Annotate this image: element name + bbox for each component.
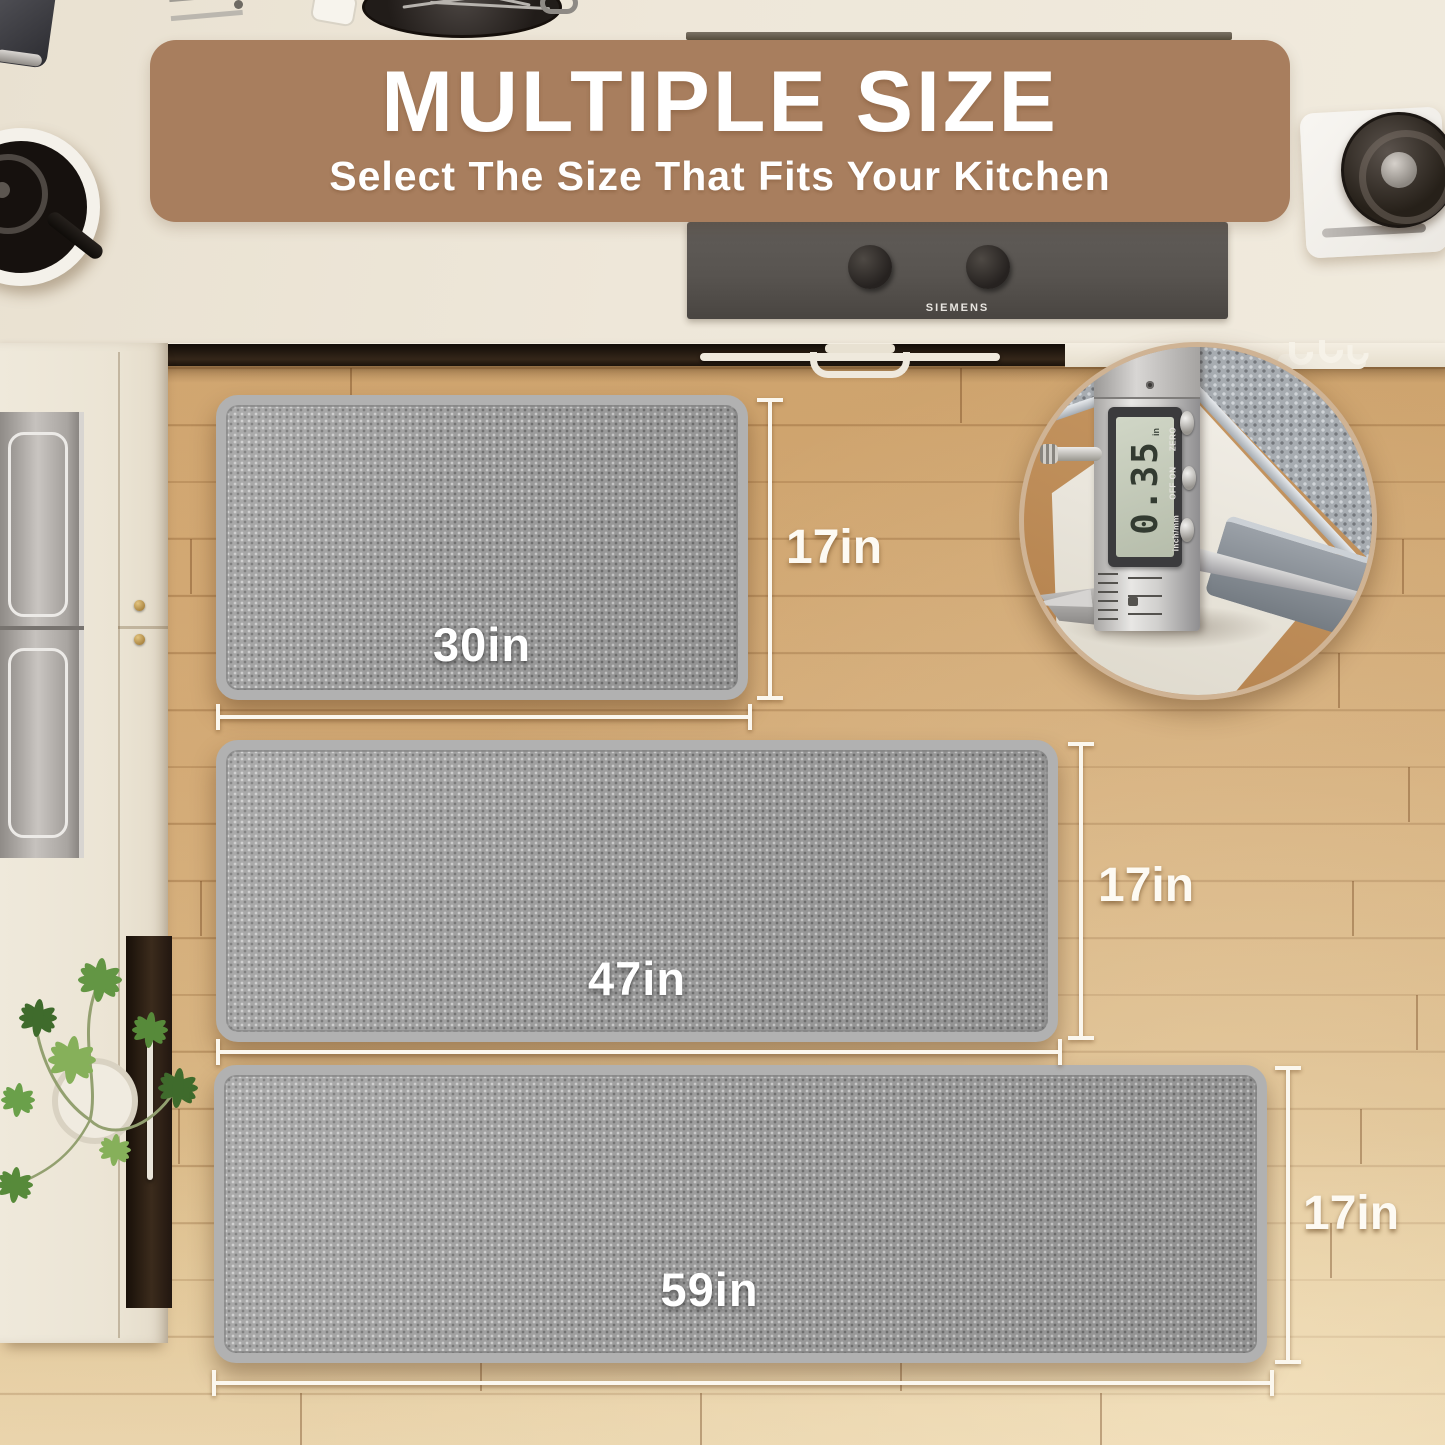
cooktop-knob [966,245,1010,289]
appliance-divider [0,626,84,630]
banner: MULTIPLE SIZE Select The Size That Fits … [150,40,1290,222]
mat-medium: 47in [216,740,1058,1042]
cooktop-brand-label: SIEMENS [687,302,1228,314]
appliance-panel-lower [8,648,68,838]
caliper-zero-label: ZERO [1169,427,1178,451]
plank-seam [1100,1393,1102,1445]
dim-line-width-medium [216,1039,1062,1065]
dim-line-height-small [757,398,783,700]
caliper-unit-label: in [1151,428,1161,436]
dim-label-height-medium: 17in [1098,858,1194,913]
caliper-screw [1146,381,1154,389]
caliper-mode-label: inch/mm [1172,515,1181,551]
mat-large: 59in [214,1065,1267,1363]
plank-seam [1402,539,1404,594]
dim-line-width-large [212,1370,1274,1396]
plank-seam [1416,995,1418,1050]
caliper-zero-button [1180,411,1194,435]
caliper-ruler-window [1128,597,1138,606]
caliper-reading: 0.35 [1116,417,1174,557]
tongs-hinge [234,0,243,9]
product-size-infographic: SIEMENS [0,0,1445,1445]
dim-line-width-small [216,704,752,730]
caliper-screw [1110,357,1118,365]
dim-line-height-large [1275,1066,1301,1364]
dim-label-height-small: 17in [786,520,882,575]
plank-seam [1408,767,1410,822]
caliper-mode-button [1180,518,1194,542]
plank-seam [1360,1109,1362,1164]
mat-small-width-label: 30in [433,617,531,672]
kettle-lid-knob [1381,152,1417,188]
drawer-handle-tab [825,344,895,353]
plank-seam [190,539,192,594]
plank-seam [1338,653,1340,708]
pan-handle [540,0,578,14]
caliper-off-label: OFF [1169,482,1178,500]
caliper-top-cap [1094,342,1200,399]
caliper-rod-knurl [1040,444,1058,464]
caliper-onoff-button [1182,466,1196,490]
dim-label-height-large: 17in [1303,1186,1399,1241]
potted-plant [0,940,240,1230]
thickness-inset-circle: 0.35 in ZERO ON OFF inch/mm [1019,342,1377,700]
caliper-reading-value: 0.35 [1125,440,1166,535]
cabinet-door-gap [118,626,168,629]
mat-large-width-label: 59in [660,1262,758,1317]
shelf-edge [686,32,1232,40]
dim-line-height-medium [1068,742,1094,1040]
cooktop-panel: SIEMENS [687,222,1228,319]
banner-subtitle: Select The Size That Fits Your Kitchen [329,153,1110,200]
plank-seam [200,881,202,936]
caliper-on-label: ON [1169,467,1178,480]
cabinet-knob [134,600,145,611]
banner-title: MULTIPLE SIZE [381,62,1059,144]
mat-small: 30in [216,395,748,700]
cabinet-knob [134,634,145,645]
mat-medium-width-label: 47in [588,951,686,1006]
drawer-handle-loop [810,352,910,378]
cooktop-knob [848,245,892,289]
plank-seam [1352,881,1354,936]
plank-seam [300,1393,302,1445]
appliance-panel-upper [8,432,68,617]
plank-seam [700,1393,702,1445]
